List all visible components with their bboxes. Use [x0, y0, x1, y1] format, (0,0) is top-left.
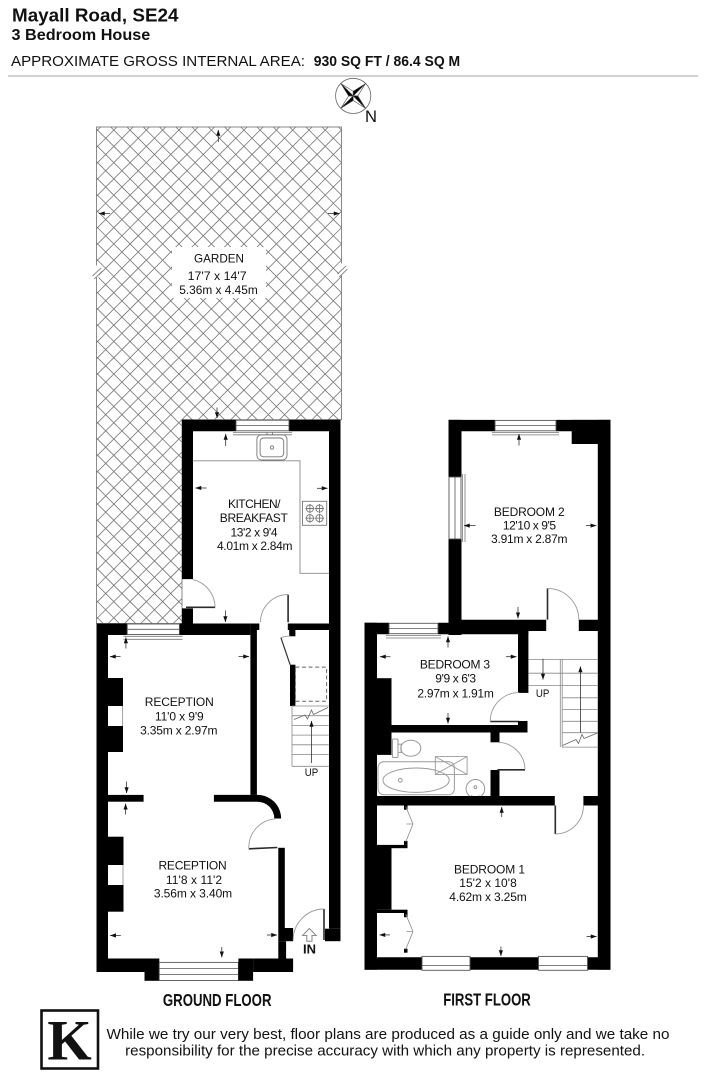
svg-text:12'10 x 9'5: 12'10 x 9'5: [503, 518, 557, 532]
svg-text:3 Bedroom House: 3 Bedroom House: [12, 27, 151, 44]
svg-text:BEDROOM 2: BEDROOM 2: [494, 505, 565, 519]
svg-text:BEDROOM 3: BEDROOM 3: [420, 658, 491, 672]
svg-text:5.36m x 4.45m: 5.36m x 4.45m: [179, 283, 258, 297]
svg-text:GROUND FLOOR: GROUND FLOOR: [163, 990, 272, 1010]
svg-text:17'7 x 14'7: 17'7 x 14'7: [188, 269, 247, 283]
svg-text:11'0 x 9'9: 11'0 x 9'9: [155, 709, 204, 723]
svg-text:BEDROOM 1: BEDROOM 1: [454, 862, 525, 876]
svg-text:BREAKFAST: BREAKFAST: [220, 511, 289, 525]
svg-text:N: N: [365, 107, 377, 126]
svg-text:4.01m x 2.84m: 4.01m x 2.84m: [217, 539, 293, 553]
svg-text:930 SQ FT / 86.4 SQ M: 930 SQ FT / 86.4 SQ M: [314, 54, 461, 70]
svg-text:3.35m x 2.97m: 3.35m x 2.97m: [140, 723, 217, 737]
svg-text:UP: UP: [536, 688, 550, 700]
svg-text:K: K: [47, 1010, 91, 1073]
svg-text:RECEPTION: RECEPTION: [145, 695, 214, 709]
svg-text:responsibility for the precise: responsibility for the precise accuracy …: [125, 1043, 645, 1060]
svg-text:RECEPTION: RECEPTION: [159, 858, 227, 872]
svg-text:9'9 x 6'3: 9'9 x 6'3: [435, 672, 476, 686]
svg-text:3.91m x 2.87m: 3.91m x 2.87m: [491, 532, 568, 546]
svg-text:UP: UP: [305, 767, 319, 779]
svg-text:KITCHEN/: KITCHEN/: [228, 497, 281, 511]
svg-text:IN: IN: [303, 942, 316, 957]
svg-text:APPROXIMATE GROSS INTERNAL ARE: APPROXIMATE GROSS INTERNAL AREA:: [11, 53, 305, 70]
svg-text:13'2 x 9'4: 13'2 x 9'4: [231, 526, 278, 540]
svg-text:3.56m x 3.40m: 3.56m x 3.40m: [154, 886, 232, 900]
svg-text:4.62m x 3.25m: 4.62m x 3.25m: [449, 890, 526, 904]
svg-text:Mayall Road, SE24: Mayall Road, SE24: [12, 6, 179, 26]
svg-text:11'8 x 11'2: 11'8 x 11'2: [166, 873, 223, 887]
svg-text:FIRST FLOOR: FIRST FLOOR: [443, 990, 531, 1010]
svg-text:2.97m x 1.91m: 2.97m x 1.91m: [417, 686, 493, 700]
svg-text:While we try our very best, fl: While we try our very best, floor plans …: [107, 1026, 670, 1043]
svg-text:GARDEN: GARDEN: [194, 252, 244, 266]
svg-text:15'2 x 10'8: 15'2 x 10'8: [459, 876, 517, 890]
